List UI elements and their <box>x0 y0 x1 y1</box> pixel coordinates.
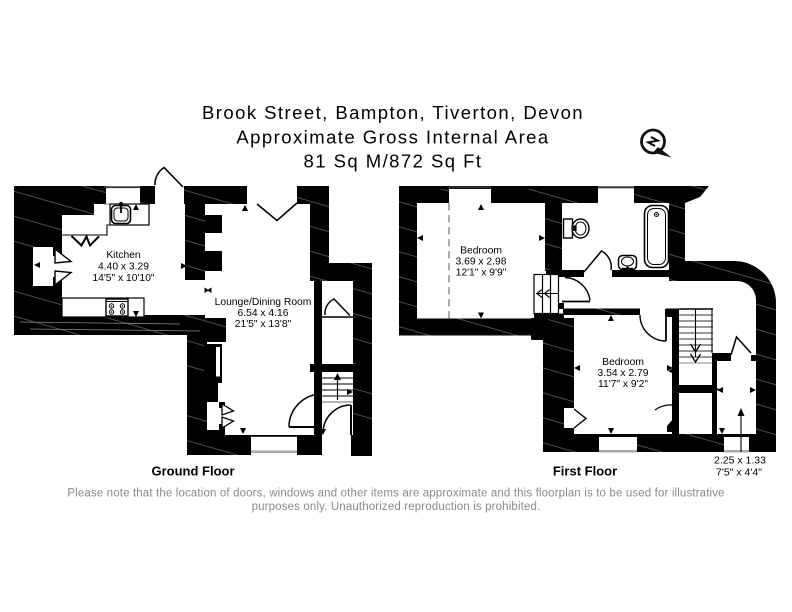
svg-text:3.69 x 2.98: 3.69 x 2.98 <box>456 257 507 268</box>
svg-text:7'5" x 4'4": 7'5" x 4'4" <box>716 467 762 479</box>
svg-text:Bedroom: Bedroom <box>602 357 644 368</box>
svg-text:Brook Street, Bampton, Tiverto: Brook Street, Bampton, Tiverton, Devon <box>202 102 584 123</box>
svg-text:Bedroom: Bedroom <box>460 246 502 257</box>
svg-text:81 Sq M/872 Sq Ft: 81 Sq M/872 Sq Ft <box>304 151 483 172</box>
svg-text:2.25 x 1.33: 2.25 x 1.33 <box>714 455 766 467</box>
svg-text:Ground Floor: Ground Floor <box>151 464 234 479</box>
svg-text:21'5" x 13'8": 21'5" x 13'8" <box>235 319 292 330</box>
svg-text:14'5" x 10'10": 14'5" x 10'10" <box>92 273 155 284</box>
svg-text:3.54 x 2.79: 3.54 x 2.79 <box>598 368 649 379</box>
svg-text:4.40 x 3.29: 4.40 x 3.29 <box>98 262 149 273</box>
svg-text:11'7" x 9'2": 11'7" x 9'2" <box>598 379 648 390</box>
svg-text:Please note that the location: Please note that the location of doors, … <box>67 488 724 500</box>
svg-text:Lounge/Dining Room: Lounge/Dining Room <box>215 297 312 308</box>
svg-text:First Floor: First Floor <box>553 464 617 479</box>
svg-text:6.54 x 4.16: 6.54 x 4.16 <box>238 308 289 319</box>
svg-text:purposes only. Unauthorized re: purposes only. Unauthorized reproduction… <box>252 501 541 513</box>
svg-text:Kitchen: Kitchen <box>106 250 141 261</box>
svg-text:Approximate Gross Internal Are: Approximate Gross Internal Area <box>236 127 549 148</box>
svg-text:12'1" x 9'9": 12'1" x 9'9" <box>456 268 507 279</box>
